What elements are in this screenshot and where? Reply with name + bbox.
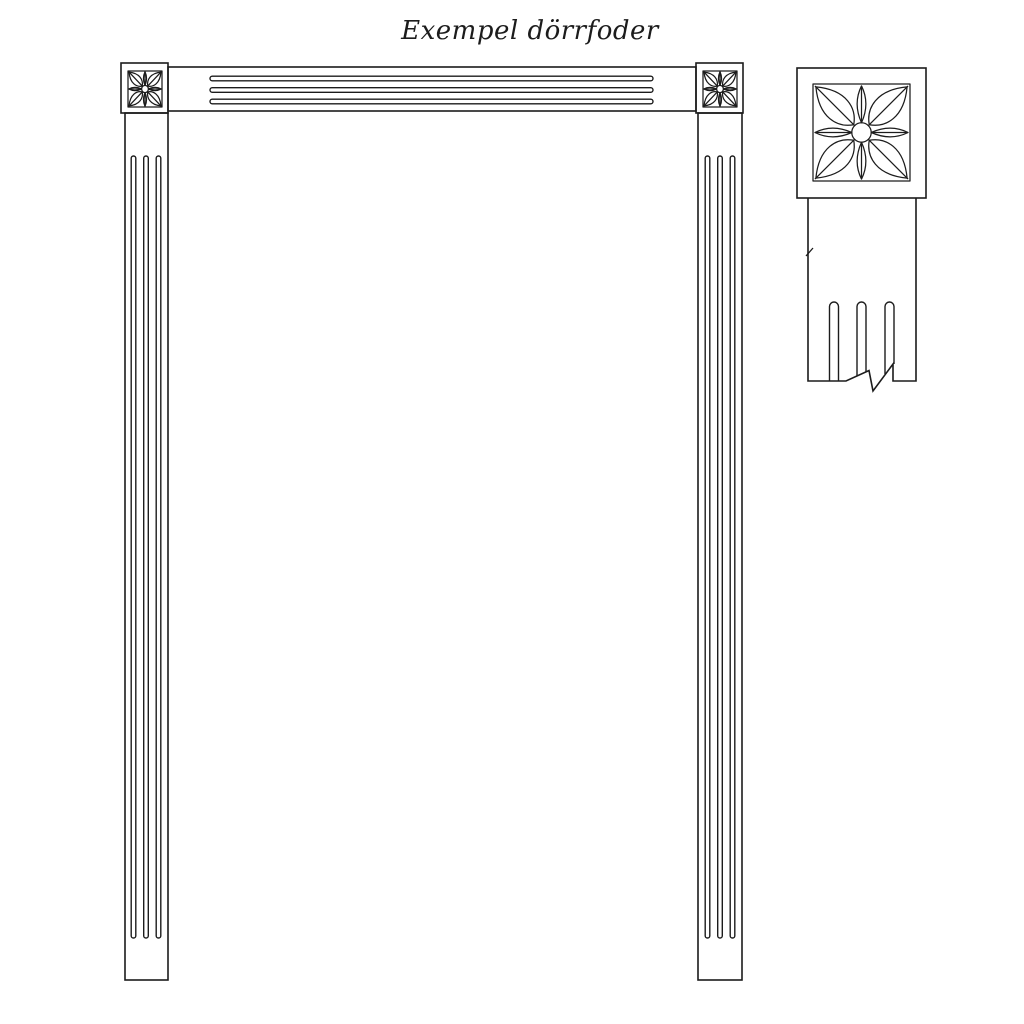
door-casing-drawing-page: Exempel dörrfoder (0, 0, 1024, 1024)
rosette-flower-icon (128, 71, 162, 107)
side-flute (156, 156, 161, 938)
edge-tick (806, 248, 813, 256)
corner-block-top-left (121, 63, 168, 113)
side-flute (730, 156, 735, 938)
rosette-flower-icon (703, 71, 737, 107)
head-flute (210, 76, 653, 81)
head-flute (210, 88, 653, 93)
side-flute (144, 156, 149, 938)
rosette-flower-icon (813, 84, 910, 181)
detail-rosette-block (797, 68, 926, 198)
side-flute (718, 156, 723, 938)
head-flute (210, 99, 653, 104)
door-frame-elevation (121, 63, 743, 980)
corner-detail-view (797, 68, 926, 391)
detail-flute (830, 302, 839, 381)
detail-casing-board (806, 198, 916, 391)
left-side-casing (125, 113, 168, 980)
head-casing (168, 67, 696, 111)
side-flute (131, 156, 136, 938)
door-casing-drawing (0, 0, 1024, 1024)
side-flute (705, 156, 710, 938)
detail-flute (857, 302, 866, 376)
break-line (808, 198, 916, 391)
right-side-casing (698, 113, 742, 980)
corner-block-top-right (696, 63, 743, 113)
